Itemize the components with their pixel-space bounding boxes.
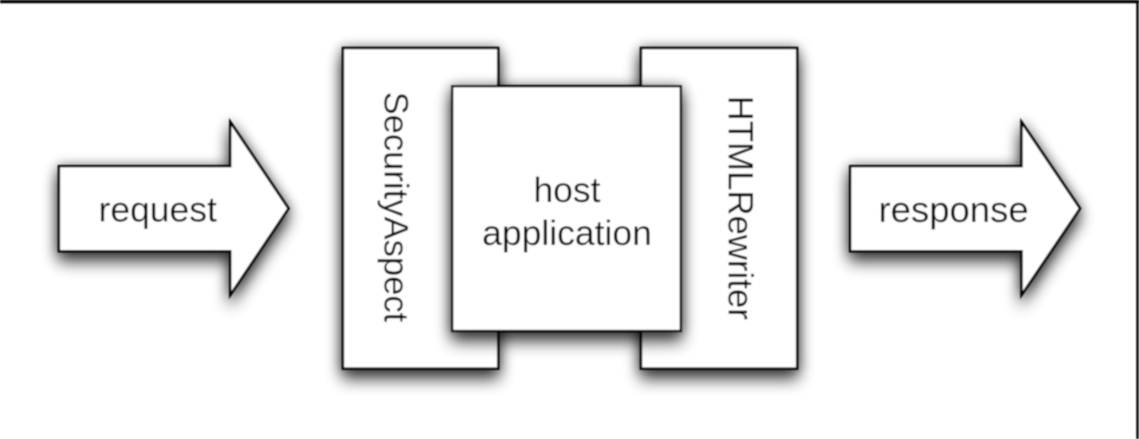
svg-text:response: response [879,189,1029,230]
svg-text:HTMLRewriter: HTMLRewriter [721,96,760,321]
svg-text:application: application [482,213,652,253]
svg-text:host: host [533,170,600,210]
svg-text:request: request [99,190,218,230]
svg-text:SecurityAspect: SecurityAspect [377,92,415,323]
